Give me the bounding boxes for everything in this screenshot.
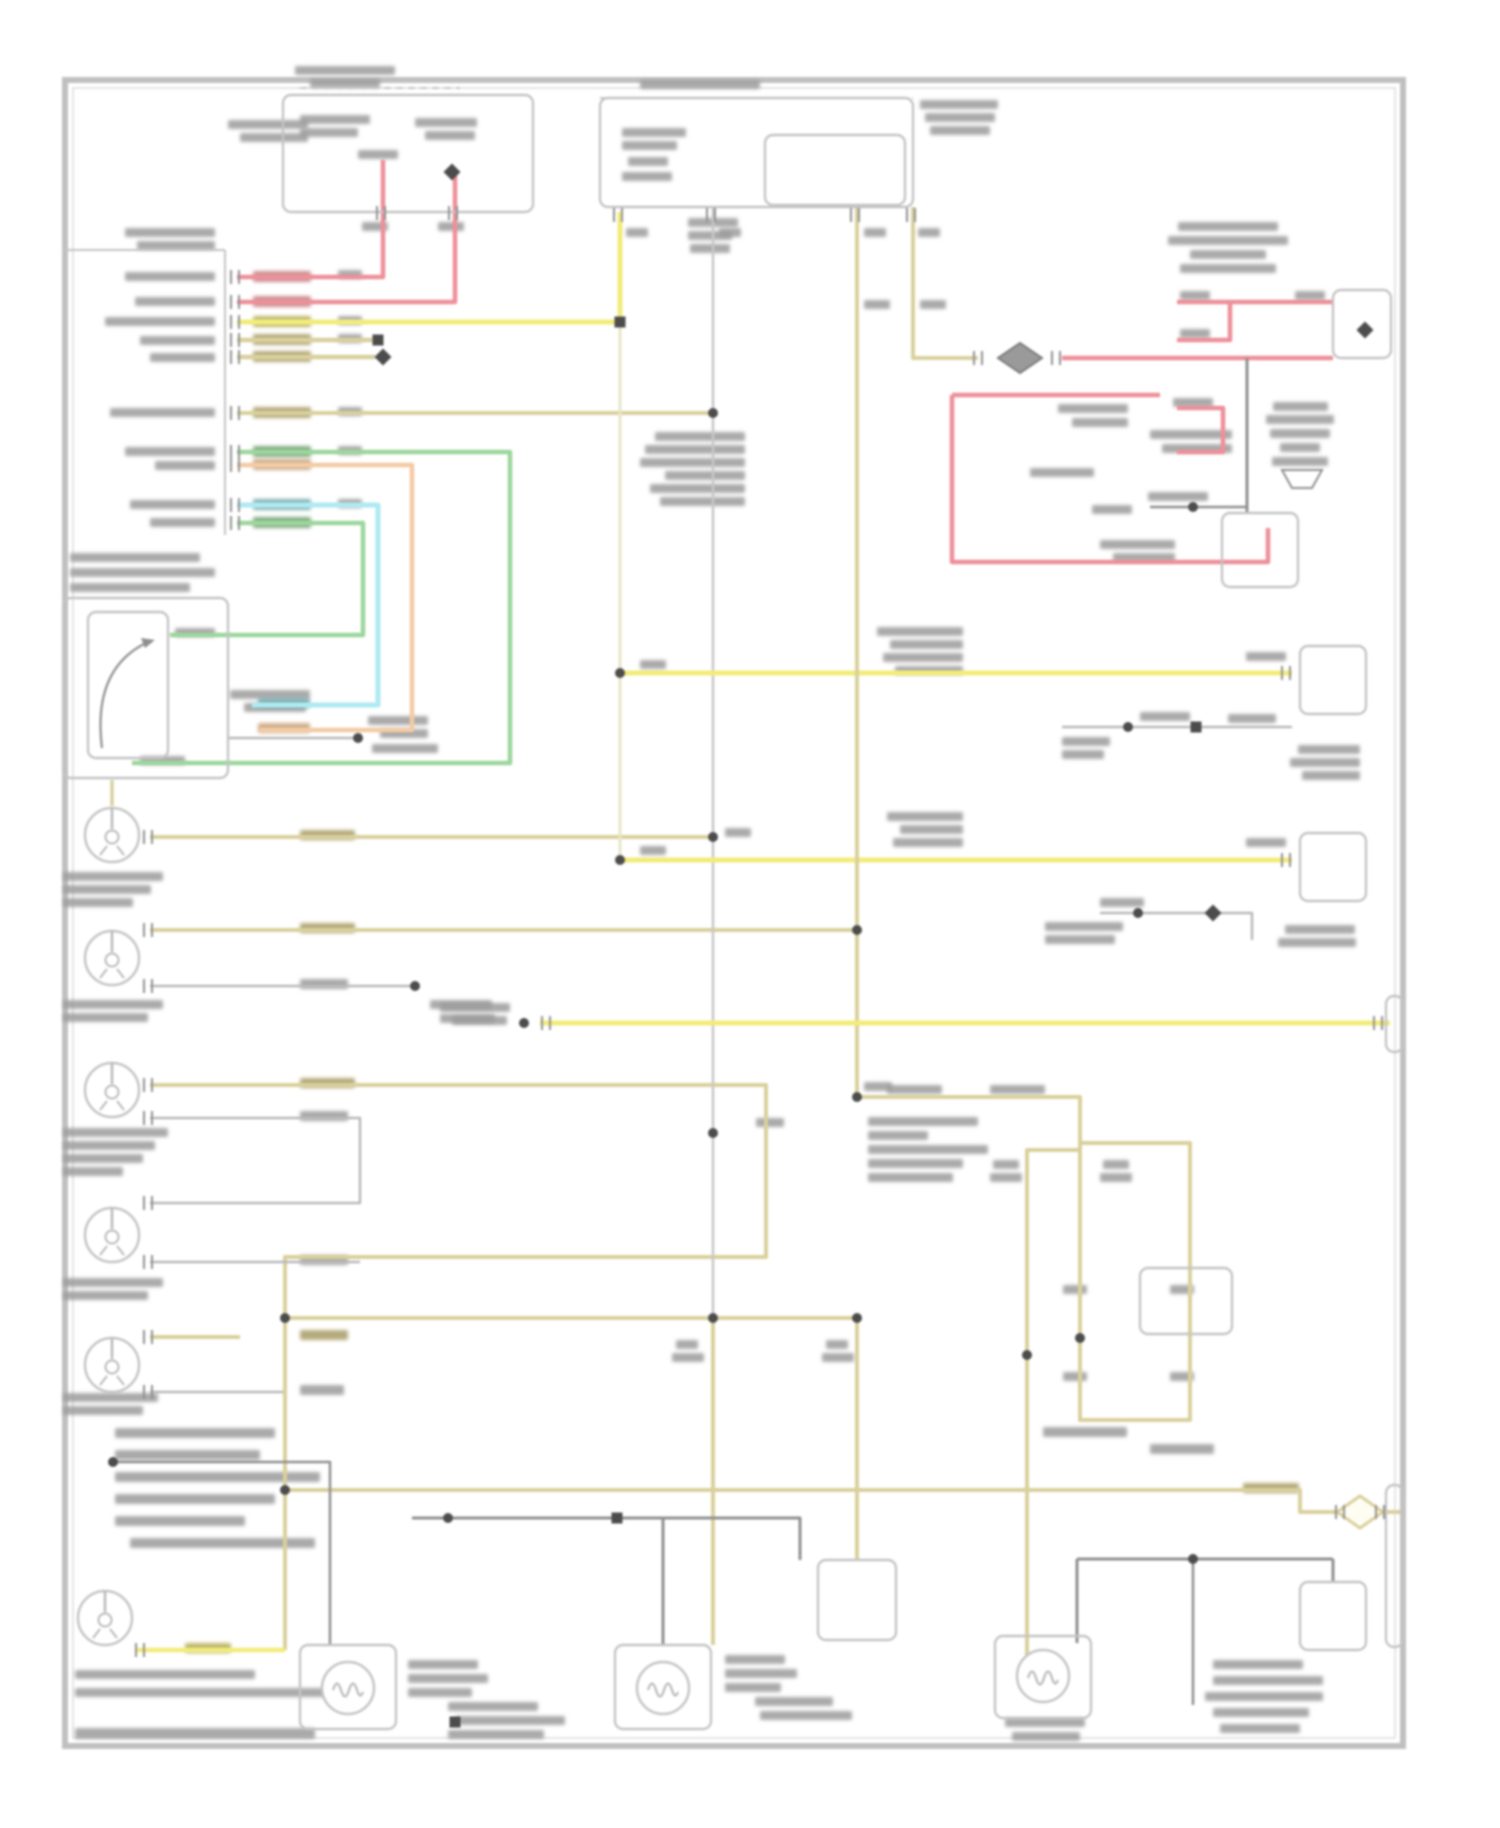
label-blob [655, 432, 745, 441]
label-blob [1062, 737, 1110, 746]
splice-diamond [1357, 322, 1374, 339]
junction-dot [708, 408, 718, 418]
label-blob [137, 241, 215, 250]
component-box [1140, 1268, 1232, 1334]
label-blob [1190, 250, 1266, 259]
label-blob [1180, 291, 1210, 300]
label-blob [300, 979, 348, 989]
lamp-symbol [1017, 1650, 1069, 1702]
label-blob [150, 518, 215, 527]
junction-dot [852, 1313, 862, 1323]
label-blob [1045, 922, 1123, 931]
label-blob [864, 228, 886, 237]
label-blob [452, 1016, 507, 1025]
component-box [600, 98, 913, 207]
label-blob [63, 898, 133, 907]
label-blob [230, 690, 310, 699]
label-blob [63, 1167, 123, 1176]
label-blob [448, 1702, 538, 1711]
label-blob [640, 80, 760, 89]
label-blob [1273, 402, 1328, 411]
wire [237, 505, 378, 705]
label-blob [868, 1173, 953, 1182]
label-blob [760, 1711, 852, 1720]
label-blob [415, 118, 477, 127]
label-blob [115, 1428, 275, 1438]
label-blob [719, 228, 741, 237]
label-blob [864, 300, 890, 309]
label-blob [1285, 925, 1355, 934]
label-blob [1100, 1173, 1132, 1182]
connector-square [1191, 722, 1202, 733]
label-blob [1062, 750, 1104, 759]
label-blob [920, 300, 946, 309]
label-blob [448, 1730, 544, 1739]
junction-dot [519, 1018, 529, 1028]
label-blob [622, 141, 677, 150]
label-blob [725, 828, 751, 837]
cluster-connector-glyph [1282, 470, 1322, 488]
label-blob [63, 1291, 148, 1300]
label-blob [1168, 236, 1288, 245]
label-blob [115, 1516, 245, 1526]
label-blob [628, 157, 668, 166]
label-blob [650, 484, 745, 493]
label-blob [1100, 898, 1144, 907]
label-blob [368, 716, 428, 725]
label-blob [1140, 712, 1190, 721]
junction-dot [615, 855, 625, 865]
label-blob [893, 838, 963, 847]
label-blob [63, 1278, 163, 1287]
splice-diamond [375, 349, 392, 366]
label-blob [1100, 540, 1175, 549]
label-blob [1272, 457, 1328, 466]
label-blob [1266, 415, 1334, 424]
label-blob [640, 660, 666, 669]
junction-dot [1188, 1554, 1198, 1564]
wire [170, 523, 363, 635]
component-box [1333, 290, 1391, 358]
label-blob [105, 317, 215, 326]
label-blob [868, 1131, 928, 1140]
label-blob [755, 1697, 833, 1706]
scanned-wiring-diagram-page [0, 0, 1500, 1828]
label-blob [900, 825, 963, 834]
junction-dot [852, 925, 862, 935]
label-blob [63, 1128, 168, 1137]
label-blob [300, 115, 370, 124]
label-blob [1213, 1708, 1309, 1717]
junction-dot [1075, 1333, 1085, 1343]
label-blob [1092, 505, 1132, 514]
wiring-diagram [0, 0, 1500, 1828]
label-blob [993, 1160, 1019, 1169]
label-blob [676, 1340, 698, 1349]
label-blob [240, 133, 308, 142]
label-blob [125, 272, 215, 281]
junction-dot [708, 1313, 718, 1323]
label-blob [990, 1173, 1022, 1182]
connector-square [450, 1717, 461, 1728]
junction-dot [280, 1313, 290, 1323]
label-blob [1180, 264, 1276, 273]
label-blob [70, 568, 215, 577]
junction-dot [708, 1128, 718, 1138]
label-blob [300, 1330, 348, 1340]
label-blob [1278, 938, 1356, 947]
label-blob [1270, 429, 1330, 438]
switch-dial-arc [100, 642, 148, 748]
label-blob [877, 627, 963, 636]
junction-dot [108, 1457, 118, 1467]
label-blob [1030, 468, 1094, 477]
connector-square [615, 317, 626, 328]
label-blob [228, 120, 308, 129]
lamp-symbol [637, 1662, 689, 1714]
wire [237, 160, 383, 277]
label-blob [1280, 443, 1320, 452]
label-blob [930, 126, 990, 135]
label-blob [70, 583, 190, 592]
component-box [1300, 1582, 1366, 1650]
label-blob [690, 244, 730, 253]
label-blob [408, 1674, 488, 1683]
label-blob [1012, 1732, 1080, 1741]
label-blob [63, 1406, 143, 1415]
label-blob [372, 744, 438, 753]
component-box [283, 95, 533, 212]
label-blob [408, 1660, 478, 1669]
label-blob [883, 653, 963, 662]
component-box [818, 1560, 896, 1640]
label-blob [438, 222, 464, 231]
label-blob [925, 113, 995, 122]
splice-diamond [444, 164, 461, 181]
label-blob [890, 640, 963, 649]
wire [663, 1518, 800, 1560]
component-box [1300, 833, 1366, 901]
wire [150, 1085, 766, 1650]
connector-square [612, 1513, 623, 1524]
label-blob [63, 1154, 143, 1163]
junction-dot [1022, 1350, 1032, 1360]
wire [237, 175, 455, 302]
junction-dot [280, 1485, 290, 1495]
label-blob [918, 228, 940, 237]
junction-dot [1133, 908, 1143, 918]
label-blob [1298, 745, 1360, 754]
label-blob [63, 1141, 155, 1150]
label-blob [125, 447, 215, 456]
label-blob [1173, 398, 1213, 407]
label-blob [1072, 418, 1128, 427]
label-blob [1295, 291, 1325, 300]
label-blob [140, 336, 215, 345]
label-blob [1213, 1660, 1303, 1669]
label-blob [70, 553, 200, 562]
component-box [1300, 646, 1366, 714]
label-blob [115, 1472, 320, 1482]
lamp-symbol [322, 1662, 374, 1714]
label-blob [1178, 222, 1278, 231]
label-blob [63, 1000, 163, 1009]
label-blob [115, 1494, 275, 1504]
label-blob [75, 1670, 255, 1679]
label-blob [125, 228, 215, 237]
label-blob [1150, 430, 1232, 439]
label-blob [135, 297, 215, 306]
junction-dot [708, 832, 718, 842]
label-blob [1246, 652, 1286, 661]
label-blob [990, 1085, 1045, 1094]
label-blob [1302, 771, 1360, 780]
connector-square [373, 335, 384, 346]
label-blob [822, 1353, 854, 1362]
label-blob [300, 1385, 344, 1395]
label-blob [756, 1118, 784, 1127]
label-blob [1103, 1160, 1129, 1169]
junction-dot [353, 733, 363, 743]
label-blob [130, 1538, 315, 1548]
component-box [1222, 513, 1298, 587]
junction-dot [615, 668, 625, 678]
label-blob [725, 1655, 785, 1664]
gauge-diamond [998, 343, 1042, 373]
component-box [765, 135, 905, 205]
label-blob [622, 172, 672, 181]
label-blob [660, 497, 745, 506]
label-blob [887, 812, 963, 821]
label-blob [640, 458, 745, 467]
junction-dot [1188, 502, 1198, 512]
label-blob [725, 1669, 797, 1678]
label-blob [115, 1450, 260, 1460]
label-blob [725, 1683, 781, 1692]
label-blob [110, 408, 215, 417]
label-blob [672, 1353, 704, 1362]
wire [132, 452, 510, 763]
label-blob [1063, 1285, 1087, 1294]
label-blob [63, 1013, 148, 1022]
label-blob [155, 461, 215, 470]
label-blob [358, 150, 398, 159]
label-blob [626, 228, 648, 237]
label-blob [1205, 1692, 1323, 1701]
label-blob [1058, 404, 1128, 413]
label-blob [1290, 758, 1360, 767]
wire [285, 1490, 1340, 1512]
label-blob [1148, 492, 1208, 501]
wire [857, 207, 1080, 1338]
label-blob [455, 1716, 565, 1725]
label-blob [1246, 838, 1286, 847]
label-blob [75, 1728, 315, 1739]
label-blob [665, 471, 745, 480]
label-blob [645, 445, 745, 454]
label-blob [310, 79, 380, 88]
label-blob [408, 1688, 472, 1697]
wire [412, 1518, 663, 1645]
junction-dot [852, 1092, 862, 1102]
wire [1027, 1150, 1080, 1657]
label-blob [622, 128, 686, 137]
switch-dial-arrow [141, 638, 155, 648]
label-blob [826, 1340, 848, 1349]
junction-dot [443, 1513, 453, 1523]
label-blob [75, 1688, 325, 1697]
label-blob [295, 66, 395, 75]
splice-diamond [1205, 905, 1222, 922]
label-blob [440, 1003, 510, 1012]
junction-dot [1123, 722, 1133, 732]
label-blob [150, 353, 215, 362]
wire [150, 1118, 360, 1203]
label-blob [1228, 714, 1276, 723]
label-blob [300, 128, 358, 137]
label-blob [130, 500, 215, 509]
label-blob [300, 1111, 348, 1121]
label-blob [1213, 1676, 1323, 1685]
label-blob [63, 872, 163, 881]
label-blob [425, 131, 475, 140]
label-blob [1150, 1444, 1214, 1454]
label-blob [868, 1159, 963, 1168]
junction-dot [410, 981, 420, 991]
label-blob [640, 846, 666, 855]
label-blob [1043, 1427, 1127, 1437]
label-blob [1005, 1718, 1085, 1727]
label-blob [920, 100, 998, 109]
label-blob [887, 1085, 942, 1094]
label-blob [1180, 329, 1210, 338]
label-blob [868, 1117, 978, 1126]
label-blob [1063, 1372, 1087, 1381]
label-blob [63, 885, 151, 894]
label-blob [868, 1145, 988, 1154]
label-blob [1045, 935, 1115, 944]
label-blob [1220, 1724, 1300, 1733]
